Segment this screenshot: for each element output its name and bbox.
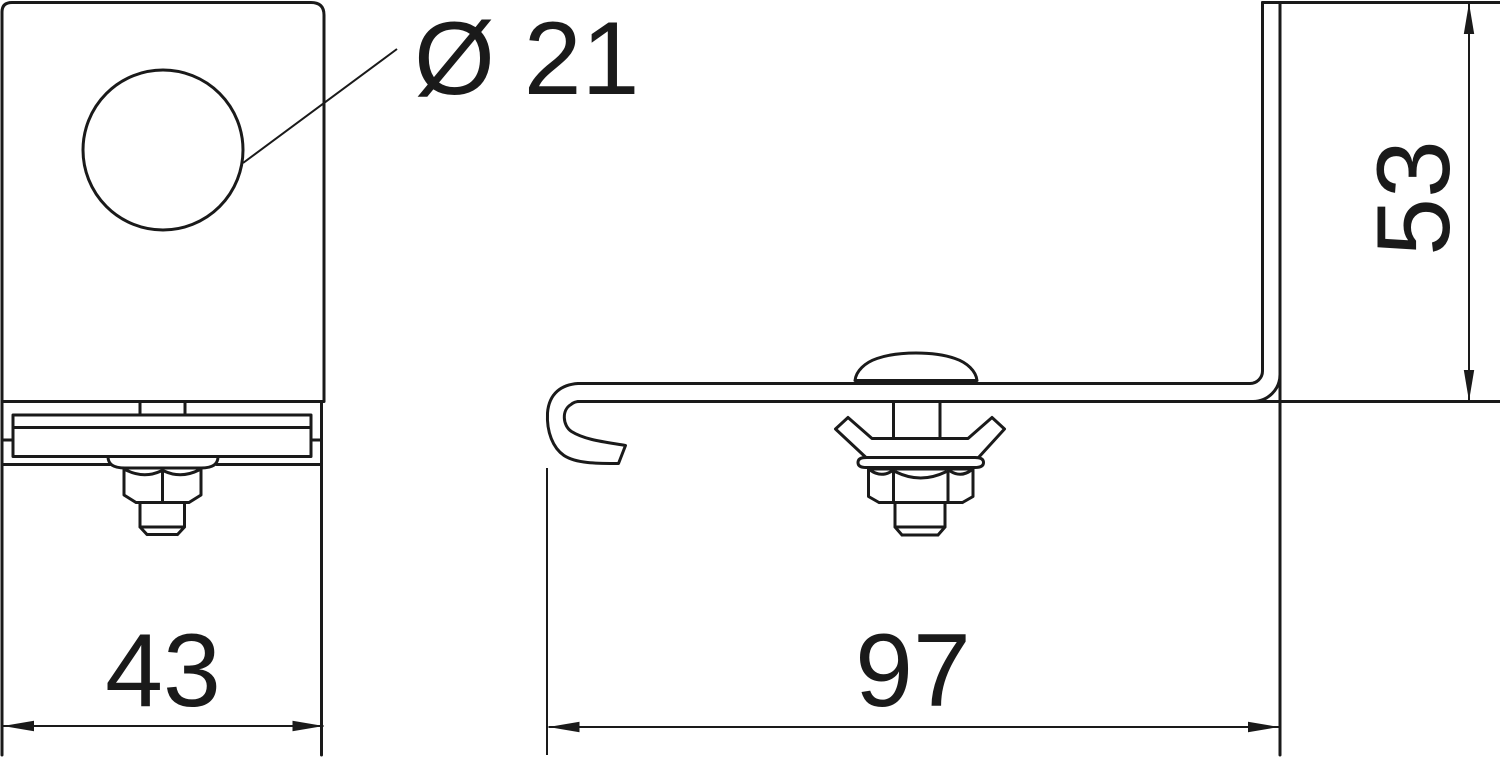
dimension-53: 53 xyxy=(1356,3,1474,401)
drawing-canvas: Ø 21 43 97 53 xyxy=(0,0,1500,759)
bracket-outer-bend xyxy=(1253,375,1280,402)
bolt-head-dome xyxy=(855,353,977,381)
width-dim-label: 43 xyxy=(105,613,221,729)
bracket-top-face xyxy=(578,3,1263,384)
nut-front xyxy=(124,469,201,503)
dim-43-arrow-left xyxy=(3,721,34,731)
leader-line xyxy=(243,49,397,163)
dimension-97: 97 xyxy=(547,468,1279,755)
bolt-neck-side xyxy=(894,402,941,439)
dim-43-arrow-right xyxy=(293,721,324,731)
hook xyxy=(547,384,625,464)
side-view xyxy=(547,3,1500,756)
dim-97-arrow-right xyxy=(1248,722,1279,732)
hole-callout: Ø 21 xyxy=(243,1,639,163)
hole-diameter-label: Ø 21 xyxy=(414,1,639,117)
nut-side xyxy=(869,469,974,503)
thread-tip-front xyxy=(140,503,185,535)
technical-drawing: Ø 21 43 97 53 xyxy=(0,0,1500,759)
dimension-43: 43 xyxy=(3,613,324,731)
dim-53-arrow-top xyxy=(1464,3,1474,34)
clamp-bar xyxy=(13,415,311,457)
flange-side xyxy=(858,458,984,468)
height-dim-label: 53 xyxy=(1356,140,1472,256)
thread-tip-side xyxy=(895,503,945,536)
bolt-neck-front xyxy=(140,402,185,416)
length-dim-label: 97 xyxy=(855,613,971,729)
flange-front xyxy=(108,457,218,469)
dim-97-arrow-left xyxy=(549,722,580,732)
dim-53-arrow-bottom xyxy=(1464,370,1474,401)
wing-washer xyxy=(836,418,1005,458)
hole-circle xyxy=(83,70,243,230)
